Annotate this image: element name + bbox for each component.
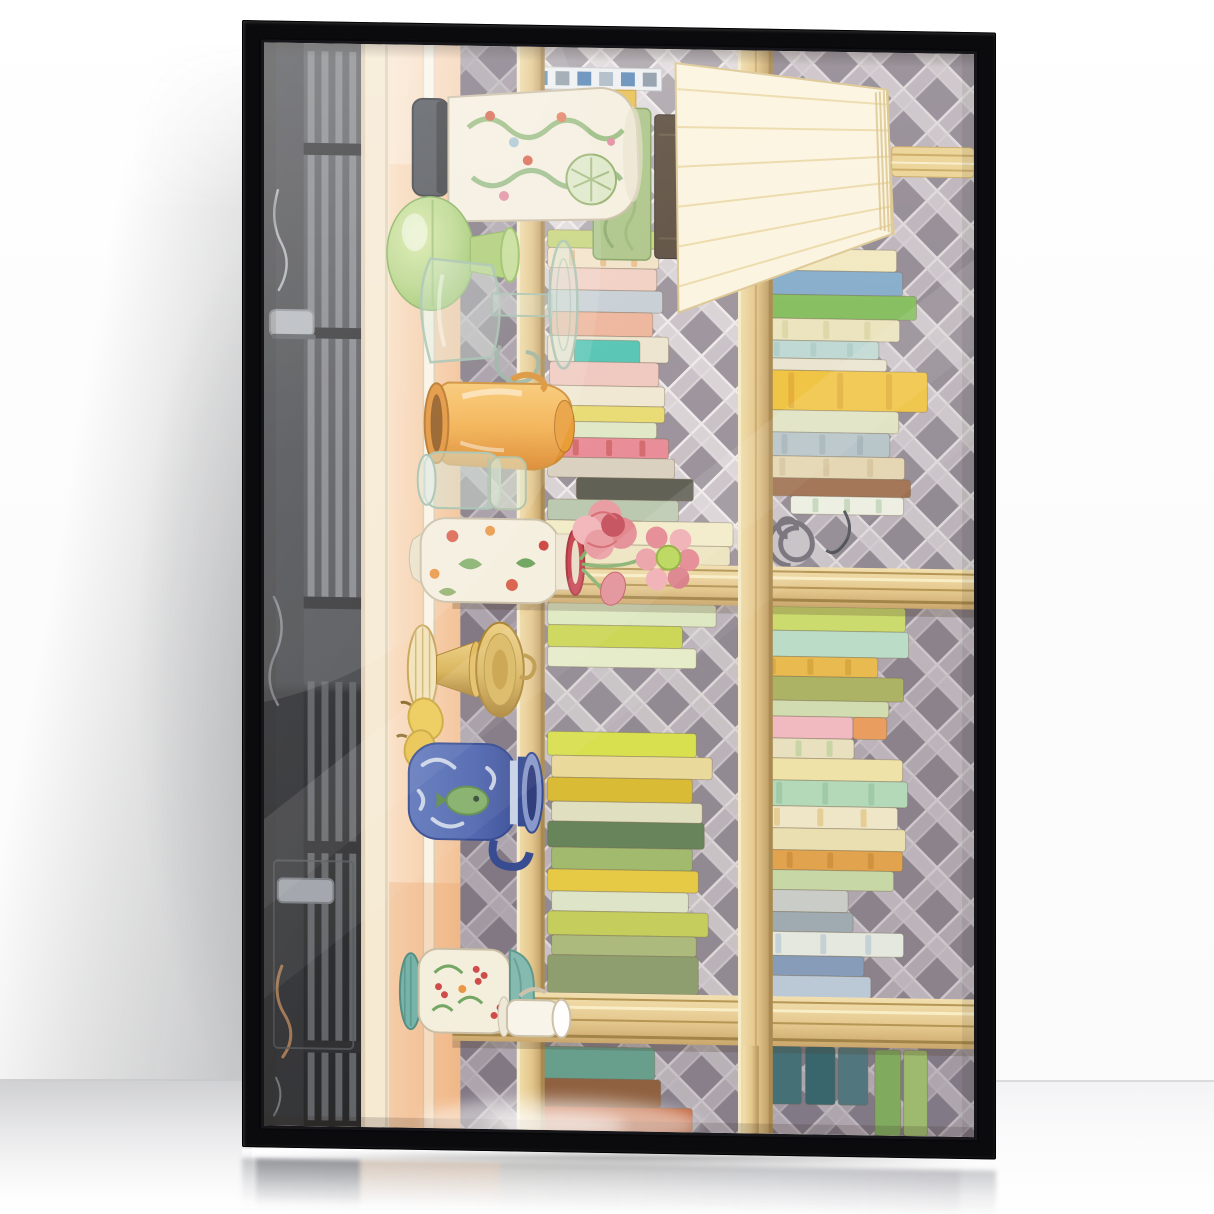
picture-frame <box>242 20 996 1160</box>
floor-shadow-left <box>0 1081 252 1201</box>
wall-shadow <box>0 40 243 1082</box>
glass-glare <box>264 42 974 1137</box>
reflection-peach-band <box>360 1160 500 1214</box>
mockup-scene <box>0 0 1214 1214</box>
artwork <box>264 42 974 1137</box>
floater-frame-lip <box>259 37 979 1142</box>
wall-floor-junction-right <box>994 1080 1214 1082</box>
reflection-artwork <box>500 1162 960 1214</box>
artwork-illustration <box>264 42 974 1137</box>
reflection-dark-band <box>256 1158 360 1214</box>
